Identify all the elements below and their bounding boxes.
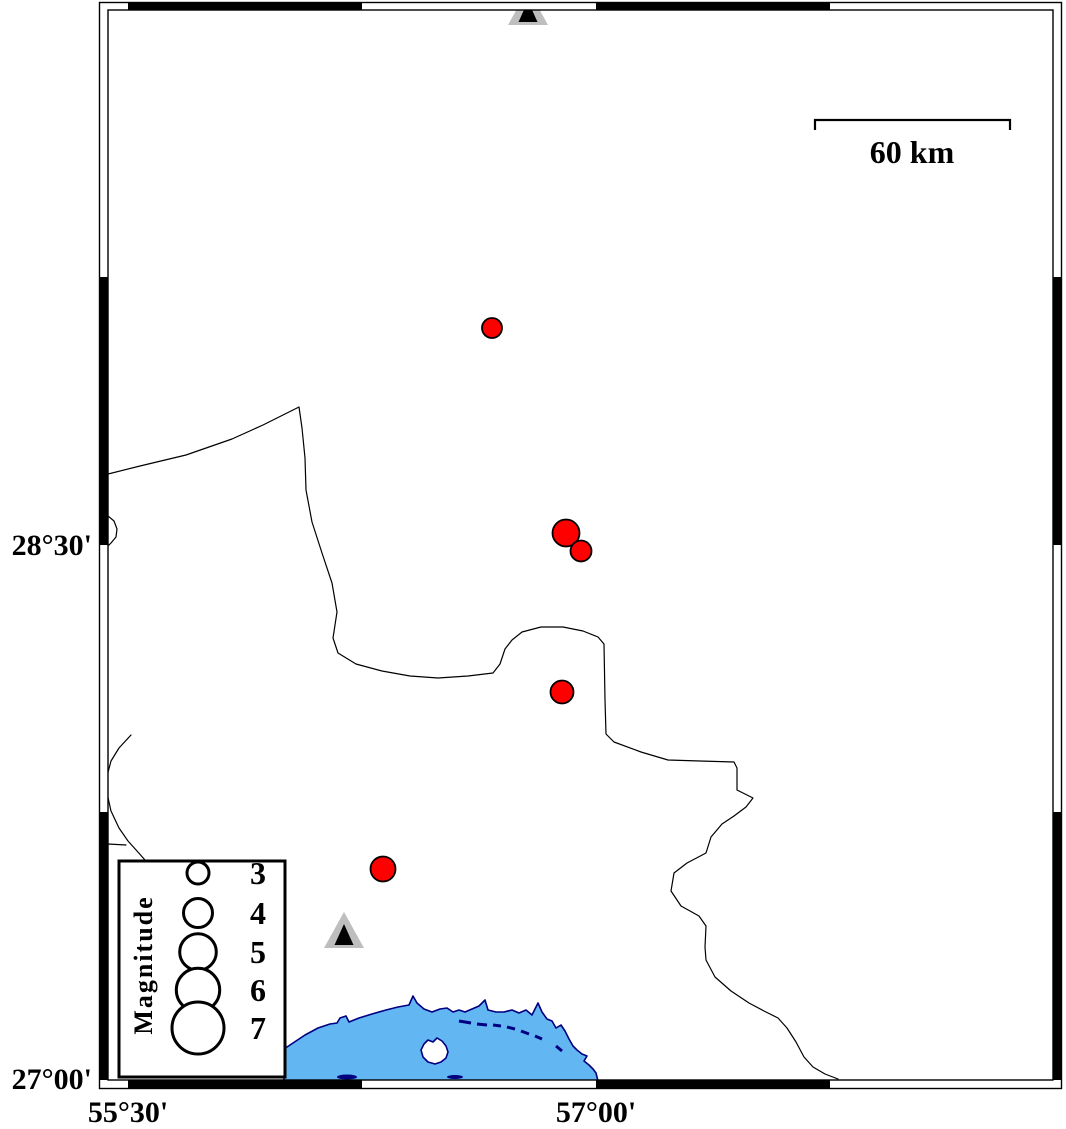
scale-bar-bracket bbox=[815, 120, 1010, 130]
legend-magnitude-circle bbox=[172, 1002, 224, 1054]
lat-label-27-00: 27°00' bbox=[12, 1063, 92, 1096]
legend-magnitude-circle bbox=[180, 934, 217, 971]
legend-magnitude-label: 3 bbox=[250, 855, 266, 891]
frame-segment-bottom bbox=[128, 1080, 362, 1089]
boundary-line bbox=[108, 516, 117, 546]
legend-magnitude-circle bbox=[184, 899, 213, 928]
earthquake-marker bbox=[371, 857, 396, 882]
legend-magnitude-circle bbox=[187, 862, 209, 884]
frame-segment-right bbox=[1053, 812, 1062, 1080]
legend-magnitude-label: 4 bbox=[250, 895, 266, 931]
lon-label-57-00: 57°00' bbox=[556, 1096, 636, 1129]
frame-segment-left bbox=[100, 277, 109, 545]
boundary-line bbox=[107, 735, 145, 860]
boundary-line bbox=[108, 844, 126, 845]
scale-bar: 60 km bbox=[815, 120, 1010, 170]
legend-magnitude-label: 5 bbox=[250, 934, 266, 970]
scale-bar-label: 60 km bbox=[870, 134, 955, 170]
lat-label-28-30: 28°30' bbox=[12, 529, 92, 562]
tidal-dash bbox=[493, 1025, 501, 1026]
seismicity-map: 60 km 28°30' 27°00' 55°30' 57°00' Magnit… bbox=[0, 0, 1066, 1129]
map-page: 60 km 28°30' 27°00' 55°30' 57°00' Magnit… bbox=[0, 0, 1066, 1129]
islet bbox=[447, 1075, 463, 1079]
earthquake-marker bbox=[482, 318, 502, 338]
tidal-dash bbox=[507, 1027, 515, 1029]
earthquake-marker bbox=[551, 681, 574, 704]
legend-title: Magnitude bbox=[129, 895, 158, 1034]
tidal-dash bbox=[477, 1024, 487, 1025]
frame-segment-top bbox=[128, 3, 362, 11]
islet bbox=[337, 1075, 357, 1080]
magnitude-legend: Magnitude 34567 bbox=[119, 855, 285, 1077]
legend-magnitude-label: 7 bbox=[250, 1010, 266, 1046]
frame-segment-bottom bbox=[596, 1080, 830, 1089]
earthquake-marker bbox=[571, 541, 592, 562]
tidal-dash bbox=[459, 1021, 471, 1023]
lon-label-55-30: 55°30' bbox=[88, 1096, 168, 1129]
frame-segment-top bbox=[596, 3, 830, 11]
frame-segment-left bbox=[100, 812, 109, 1080]
sea-area bbox=[284, 996, 598, 1081]
legend-magnitude-label: 6 bbox=[250, 972, 266, 1008]
frame-segment-right bbox=[1053, 277, 1062, 545]
